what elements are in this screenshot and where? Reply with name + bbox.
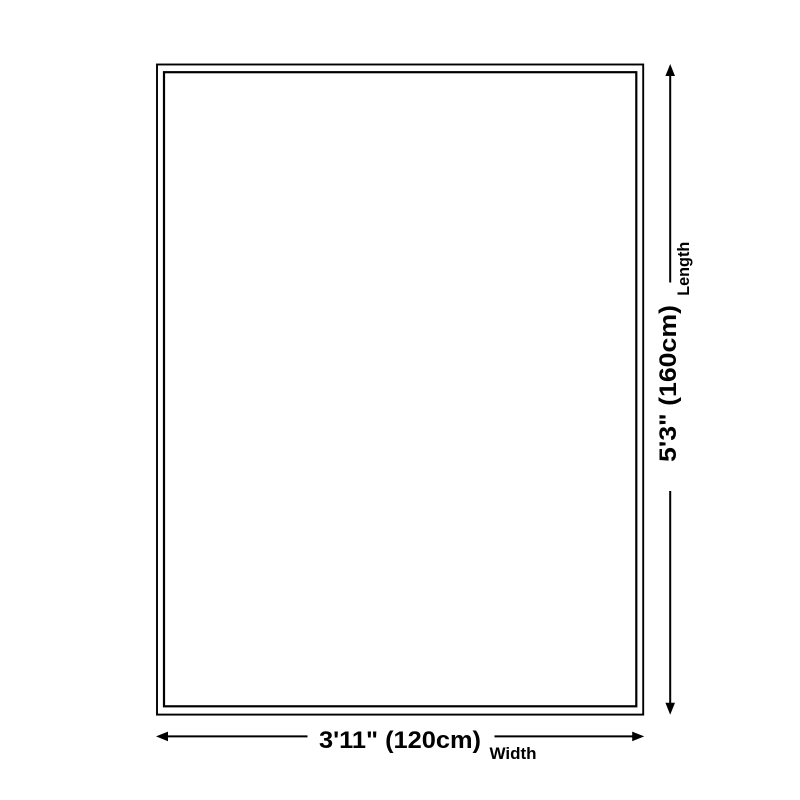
svg-text:5'3" (160cm): 5'3" (160cm) xyxy=(655,305,682,462)
svg-text:Length: Length xyxy=(674,242,693,296)
svg-text:Width: Width xyxy=(490,744,537,763)
svg-text:3'11" (120cm): 3'11" (120cm) xyxy=(319,727,481,754)
